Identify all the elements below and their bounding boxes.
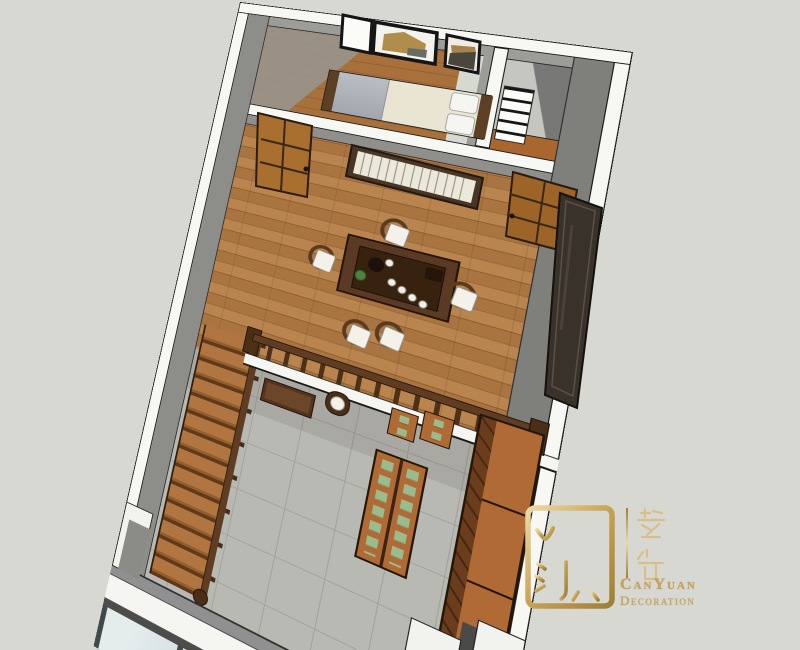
logo-seal: [524, 504, 616, 610]
logo-divider-line: [626, 508, 628, 578]
watermark-logo: CanYuan Decoration: [520, 500, 750, 640]
sketchup-floorplan-render: CanYuan Decoration: [0, 0, 800, 650]
stool-cushion: [329, 394, 346, 413]
bed-blanket: [331, 72, 390, 120]
display-items-green: [430, 419, 444, 443]
brand-subtitle: Decoration: [620, 594, 748, 609]
bed-pillow: [448, 92, 480, 115]
seal-character-yuan: [536, 562, 598, 600]
logo-side-characters: [634, 506, 668, 586]
bed-pillow: [444, 113, 476, 136]
brand-text: CanYuan Decoration: [620, 576, 748, 609]
brand-name: CanYuan: [620, 576, 748, 594]
seal-character-can: [537, 518, 594, 548]
display-items-green: [396, 415, 409, 437]
